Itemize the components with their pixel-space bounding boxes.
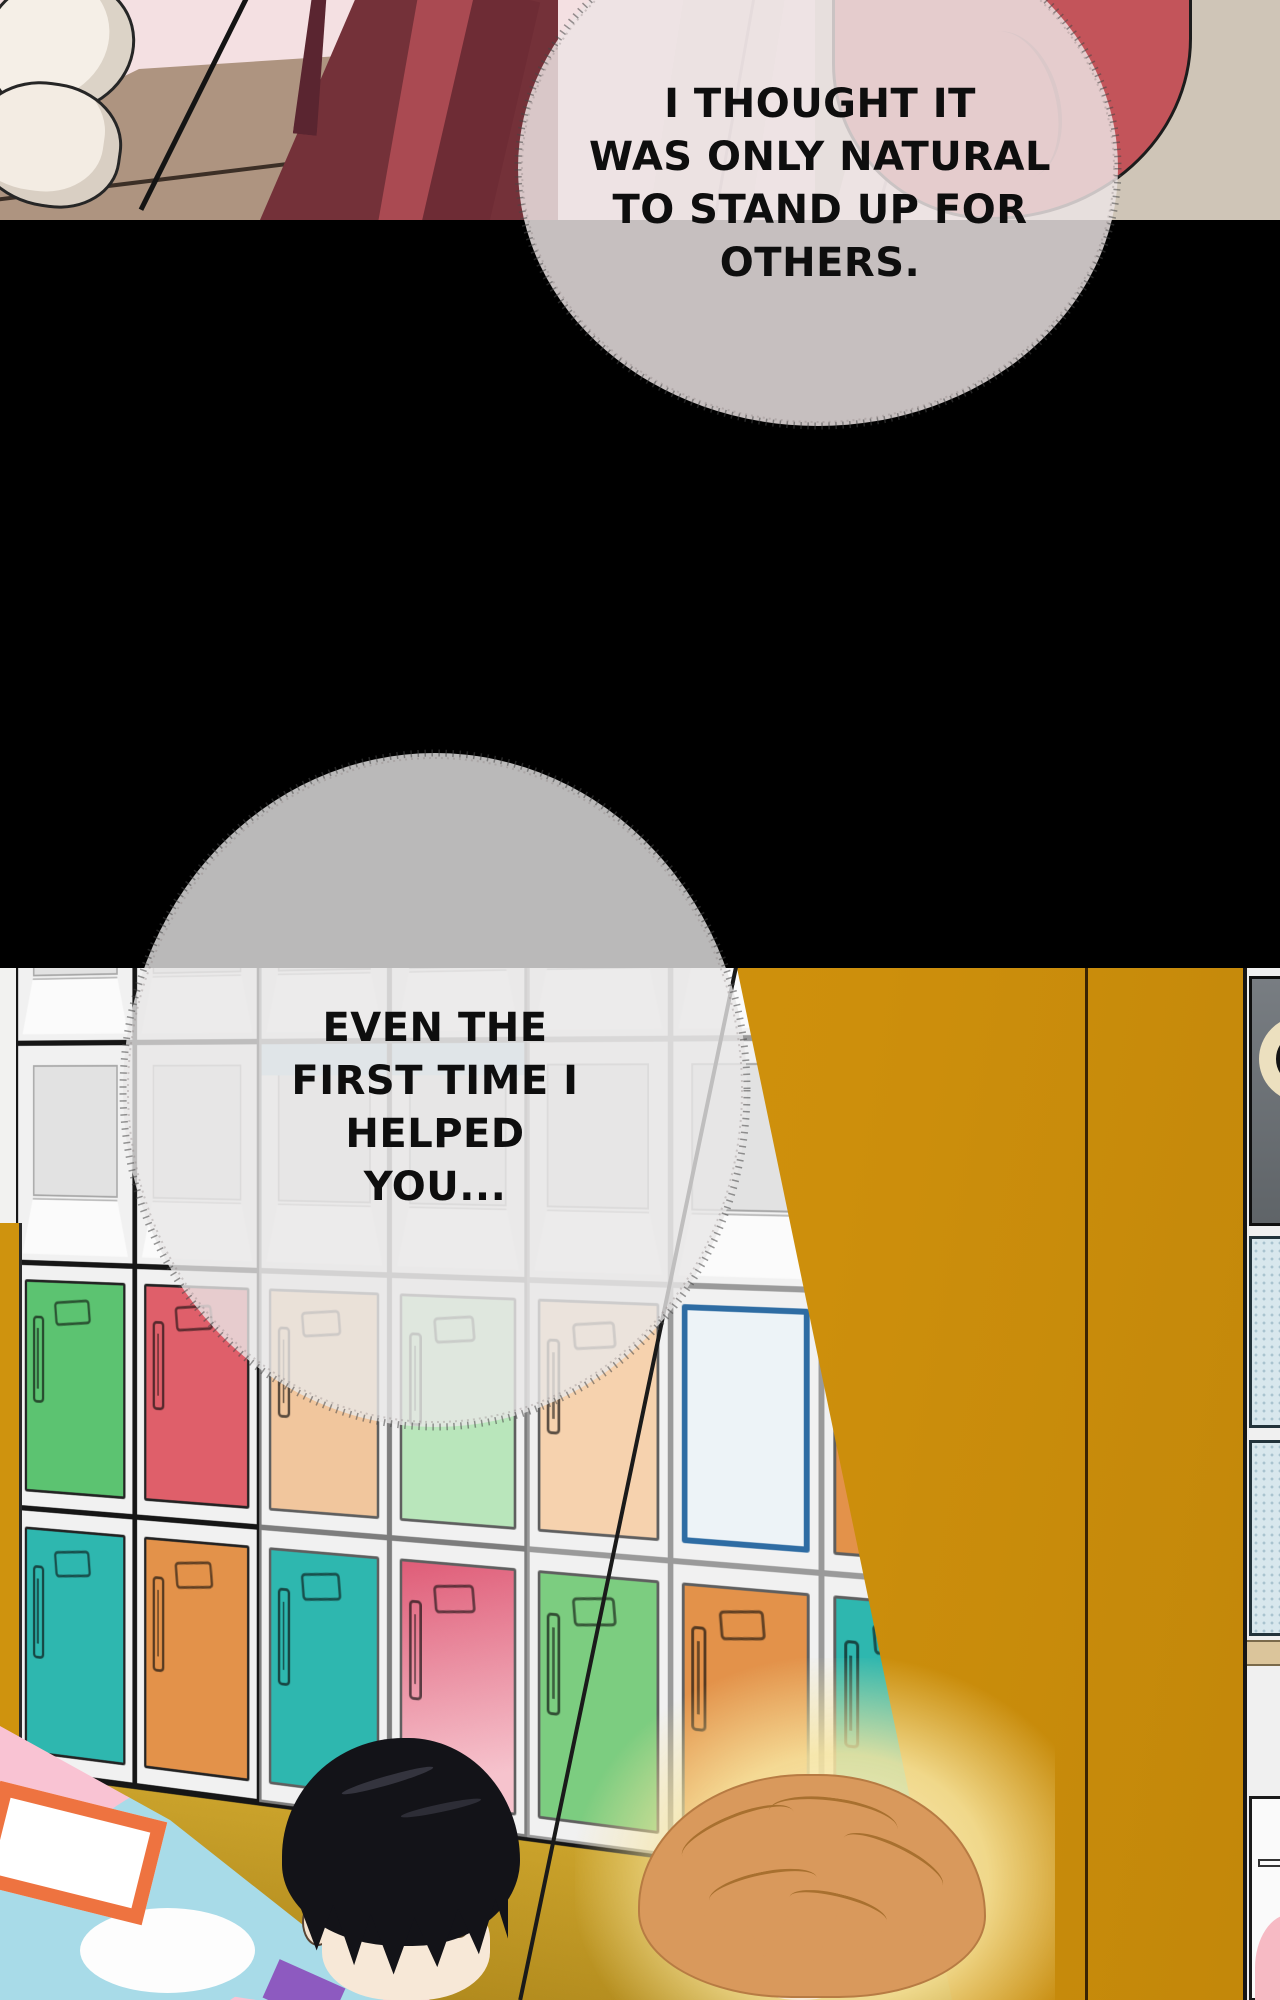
locker-door-teal (25, 1526, 126, 1766)
door-handle (33, 1315, 44, 1402)
door-handle (278, 1588, 290, 1687)
door-handle (33, 1565, 44, 1659)
wood-shelf-edge (1247, 1640, 1280, 1666)
narration-line: YOU... (205, 1161, 665, 1214)
webtoon-page: I THOUGHT IT WAS ONLY NATURAL TO STAND U… (0, 0, 1280, 2000)
narration-line: OTHERS. (560, 237, 1080, 290)
gray-shelf-compartment (1249, 976, 1280, 1226)
blue-storage-box (1249, 1236, 1280, 1428)
name-plate (54, 1550, 91, 1577)
door-handle (152, 1576, 164, 1673)
black-haired-character (282, 1738, 522, 2000)
name-plate (174, 1561, 213, 1589)
name-plate (718, 1610, 765, 1640)
right-shelf-strip (1243, 968, 1280, 2000)
name-plate (54, 1300, 91, 1327)
locker-door-orange (144, 1536, 249, 1782)
name-plate (433, 1584, 476, 1613)
drawer-handle (1258, 1859, 1280, 1867)
side-panel-joint-line (1085, 968, 1088, 2000)
narration-line: TO STAND UP FOR (560, 184, 1080, 237)
narration-line: HELPED (205, 1108, 665, 1161)
locker-door-cell (16, 1507, 135, 1785)
door-handle (409, 1600, 422, 1701)
narration-line: I THOUGHT IT (560, 78, 1080, 131)
door-handle (547, 1612, 561, 1716)
narration-text-2: EVEN THE FIRST TIME I HELPED YOU... (205, 1002, 665, 1214)
blue-storage-box (1249, 1440, 1280, 1636)
name-plate (301, 1573, 342, 1601)
narration-line: WAS ONLY NATURAL (560, 131, 1080, 184)
mat-cloud-shape (80, 1908, 255, 1993)
orange-haired-character (638, 1774, 988, 2000)
narration-line: FIRST TIME I (205, 1055, 665, 1108)
name-plate (572, 1597, 617, 1627)
narration-text-1: I THOUGHT IT WAS ONLY NATURAL TO STAND U… (560, 78, 1080, 290)
narration-line: EVEN THE (205, 1002, 665, 1055)
locker-door-cell (135, 1517, 260, 1802)
